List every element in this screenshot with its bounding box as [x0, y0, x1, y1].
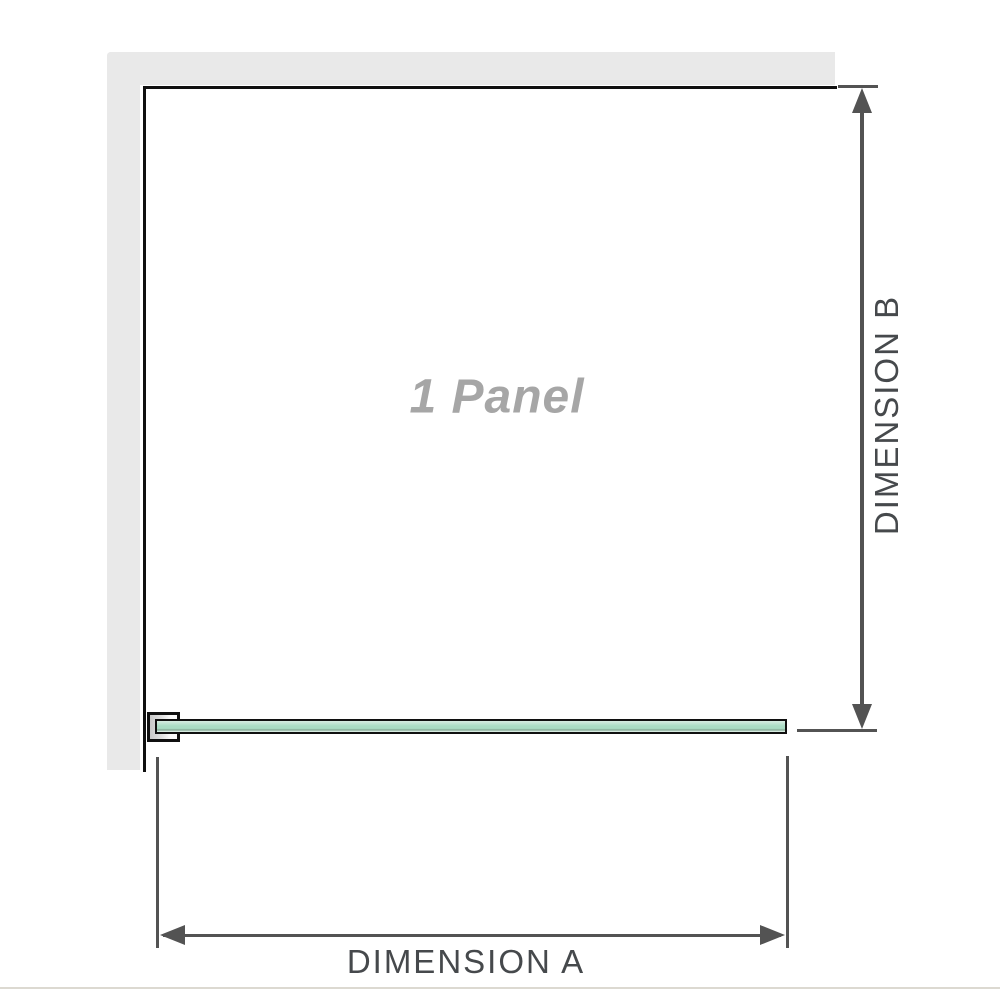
dimension-b-arrow-up-icon	[852, 88, 872, 113]
panel-dimension-diagram: 1 Panel DIMENSION B DIMENSION A	[0, 0, 1000, 1000]
wall-top-segment	[107, 52, 835, 85]
bottom-separator	[0, 987, 1000, 989]
dimension-b-line	[860, 95, 864, 713]
dimension-a-extension-left	[156, 757, 159, 948]
dimension-b-arrow-down-icon	[852, 704, 872, 729]
glass-panel-bar	[155, 719, 787, 734]
dimension-b-label: DIMENSION B	[868, 295, 906, 535]
dimension-a-line	[163, 934, 781, 937]
dimension-a-extension-right	[786, 756, 789, 948]
dimension-a-label: DIMENSION A	[347, 943, 585, 981]
dimension-a-arrow-right-icon	[760, 925, 785, 945]
panel-label: 1 Panel	[409, 370, 584, 425]
dimension-b-tick-bottom	[797, 729, 877, 732]
panel-outline-left	[143, 86, 146, 772]
dimension-a-arrow-left-icon	[160, 925, 185, 945]
wall-left-segment	[107, 52, 140, 770]
panel-outline-top	[143, 86, 837, 89]
